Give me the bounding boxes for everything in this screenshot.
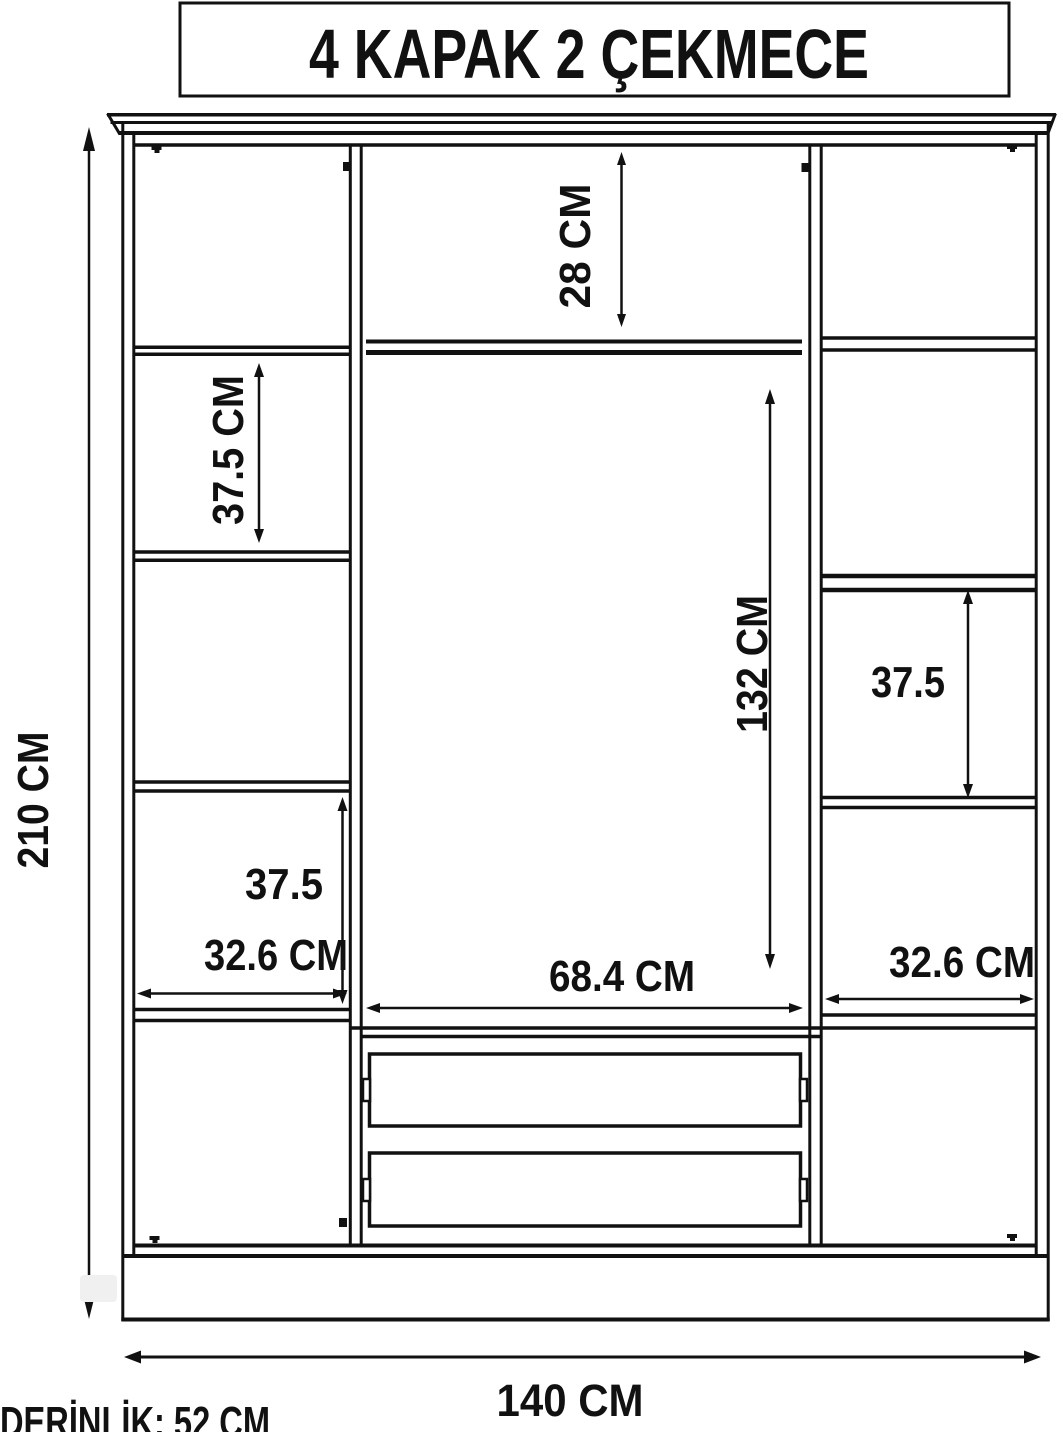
svg-text:210 CM: 210 CM: [9, 732, 58, 869]
svg-text:37.5: 37.5: [871, 658, 945, 707]
svg-text:37.5 CM: 37.5 CM: [204, 375, 253, 525]
svg-text:140 CM: 140 CM: [497, 1375, 644, 1426]
svg-text:132 CM: 132 CM: [728, 595, 777, 733]
svg-text:4 KAPAK 2 ÇEKMECE: 4 KAPAK 2 ÇEKMECE: [309, 15, 869, 93]
svg-text:28 CM: 28 CM: [551, 184, 600, 309]
svg-text:68.4 CM: 68.4 CM: [549, 952, 695, 1001]
svg-text:32.6 CM: 32.6 CM: [204, 931, 348, 980]
svg-text:37.5: 37.5: [245, 860, 323, 909]
svg-text:DERİNLİK: 52 CM: DERİNLİK: 52 CM: [0, 1398, 270, 1432]
svg-text:32.6 CM: 32.6 CM: [889, 938, 1035, 987]
